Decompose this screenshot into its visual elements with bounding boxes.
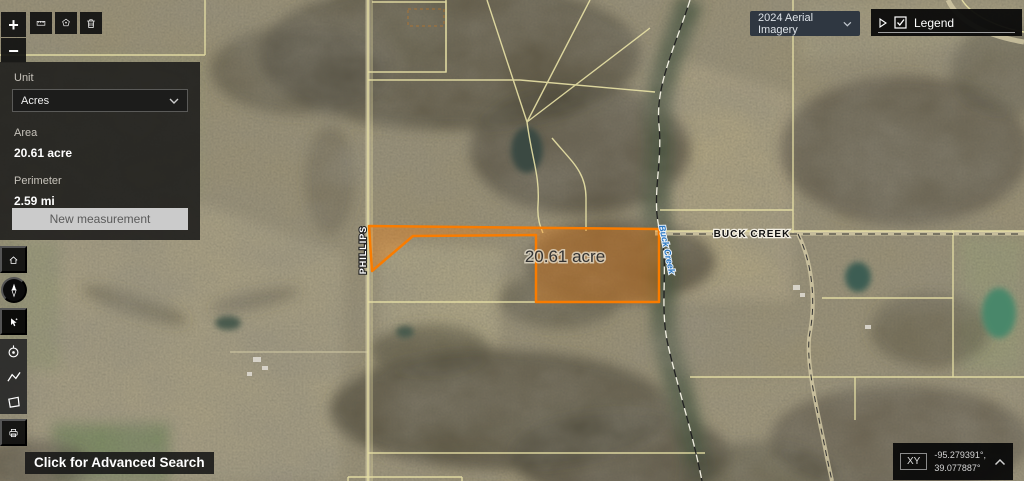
measure-area-button[interactable] [55, 12, 77, 34]
expand-triangle-icon [879, 18, 887, 28]
legend-label: Legend [914, 16, 954, 30]
road-label-phillips: PHILLIPS [358, 226, 368, 275]
point-marker-icon [6, 344, 21, 359]
draw-tools-group [0, 339, 27, 414]
zoom-out-button[interactable]: − [1, 38, 26, 63]
polygon-area-label: 20.61 acre [525, 247, 605, 266]
unit-label: Unit [14, 72, 188, 84]
longitude-value: -95.279391°, [934, 450, 986, 460]
legend-divider [878, 32, 1015, 33]
basemap-selector-value: 2024 Aerial Imagery [758, 12, 843, 36]
compass-needle-icon [9, 281, 19, 299]
area-value: 20.61 acre [14, 146, 188, 160]
unit-select[interactable]: Acres [12, 89, 188, 112]
zoom-in-button[interactable]: + [1, 12, 26, 37]
clear-measurement-button[interactable] [80, 12, 102, 34]
draw-polygon-button[interactable] [0, 389, 27, 414]
select-tool-button[interactable] [0, 308, 27, 335]
ruler-icon [36, 15, 46, 31]
polygon-icon [6, 395, 21, 409]
checkbox-checked-icon[interactable] [894, 16, 907, 29]
collapse-coordinates-button[interactable] [994, 458, 1006, 466]
coordinate-readout: -95.279391°, 39.077887° [934, 449, 986, 473]
basemap-selector[interactable]: 2024 Aerial Imagery [750, 11, 860, 36]
print-button[interactable] [0, 419, 27, 446]
compass-reset-north-button[interactable] [1, 277, 27, 303]
home-icon [8, 252, 19, 268]
unit-select-value: Acres [21, 95, 49, 107]
perimeter-value: 2.59 mi [14, 194, 188, 208]
draw-point-button[interactable] [0, 339, 27, 364]
measurement-panel: Unit Acres Area 20.61 acre Perimeter 2.5… [0, 62, 200, 240]
printer-icon [8, 425, 19, 441]
advanced-search-button[interactable]: Click for Advanced Search [25, 452, 214, 474]
coordinate-bar: XY -95.279391°, 39.077887° [893, 443, 1013, 480]
area-label: Area [14, 127, 188, 139]
trash-icon [86, 16, 96, 31]
xy-toggle-button[interactable]: XY [900, 453, 927, 470]
road-label-buck-creek: BUCK CREEK [714, 229, 791, 240]
home-button[interactable] [0, 246, 27, 273]
chevron-down-icon [843, 21, 852, 27]
new-measurement-button[interactable]: New measurement [12, 208, 188, 230]
legend-panel[interactable]: Legend [871, 9, 1022, 36]
polygon-area-icon [61, 15, 71, 31]
perimeter-label: Perimeter [14, 175, 188, 187]
polyline-icon [6, 370, 22, 384]
gis-map-app: PHILLIPS BUCK CREEK Buck Creek 20.61 acr… [0, 0, 1024, 481]
measure-distance-button[interactable] [30, 12, 52, 34]
draw-polyline-button[interactable] [0, 364, 27, 389]
pointer-select-icon [8, 314, 19, 330]
latitude-value: 39.077887° [934, 463, 980, 473]
chevron-up-icon [994, 458, 1006, 466]
chevron-down-icon [169, 98, 179, 104]
